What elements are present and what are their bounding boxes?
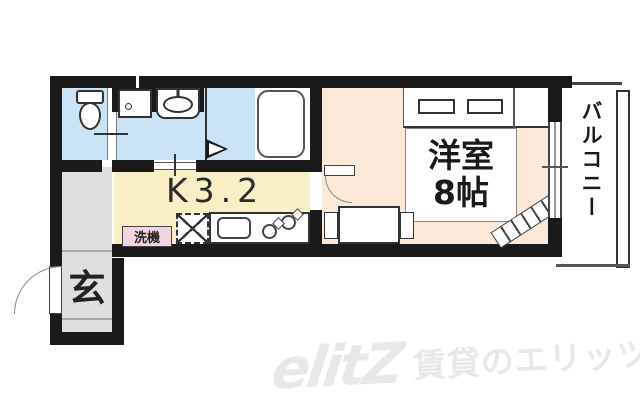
elitz-logo: elitZ xyxy=(268,331,405,403)
wall-entrance-right xyxy=(112,258,124,345)
wall-bottom-main xyxy=(112,244,562,257)
room-label-line2: 8帖 xyxy=(433,175,489,212)
washing-machine-pan-icon xyxy=(118,89,152,118)
entrance-step-line xyxy=(62,250,112,252)
wall-balcony-left-upper xyxy=(548,86,562,122)
toilet-partition-tick xyxy=(94,133,128,135)
chair-icon xyxy=(400,212,414,239)
bathtub-icon xyxy=(257,90,305,158)
wall-mid-washroom xyxy=(112,160,154,172)
wall-left xyxy=(50,76,62,266)
balcony-window-mullion xyxy=(554,122,556,218)
kitchen-sink-icon xyxy=(217,217,251,239)
floorplan-canvas: K3.2 洗機 玄 洋室 8帖 バルコニー elitZ 賃貸のエリッツ xyxy=(0,0,640,416)
wall-mid-toilet xyxy=(62,160,102,172)
washbasin-icon xyxy=(156,88,200,119)
balcony-label: バルコニー xyxy=(576,100,606,260)
watermark: elitZ 賃貸のエリッツ xyxy=(271,318,640,403)
kitchen-label: K3.2 xyxy=(150,171,280,210)
room-door-leaf xyxy=(324,165,355,176)
closet-door-handle xyxy=(418,99,455,114)
closet-door-handle xyxy=(467,99,503,114)
chair-icon xyxy=(324,212,338,239)
laundry-label: 洗機 xyxy=(122,226,172,247)
watermark-text: 賃貸のエリッツ xyxy=(412,327,640,387)
entrance-step-line xyxy=(62,318,112,320)
balcony-rail xyxy=(616,90,630,268)
wall-kitchen-room-lower xyxy=(310,210,322,244)
drain-icon xyxy=(125,103,132,110)
wall-kitchen-room-upper xyxy=(310,88,322,168)
closet-divider xyxy=(513,88,515,128)
faucet-icon xyxy=(177,89,180,97)
balcony-bottom-line xyxy=(556,264,630,267)
top-wall-window-slit xyxy=(136,76,139,88)
wall-balcony-left-lower xyxy=(548,218,562,246)
room-label-line1: 洋室 xyxy=(428,138,494,175)
dining-table-icon xyxy=(338,206,400,244)
entrance-door-arc xyxy=(14,266,62,314)
balcony-window-tick xyxy=(542,166,568,168)
balcony-top-line xyxy=(572,82,622,85)
entrance-label: 玄 xyxy=(62,258,112,312)
wall-top xyxy=(50,76,572,88)
basin-bowl-icon xyxy=(163,96,193,113)
refrigerator-space-icon xyxy=(176,213,209,244)
room-label-box: 洋室 8帖 xyxy=(405,128,517,222)
